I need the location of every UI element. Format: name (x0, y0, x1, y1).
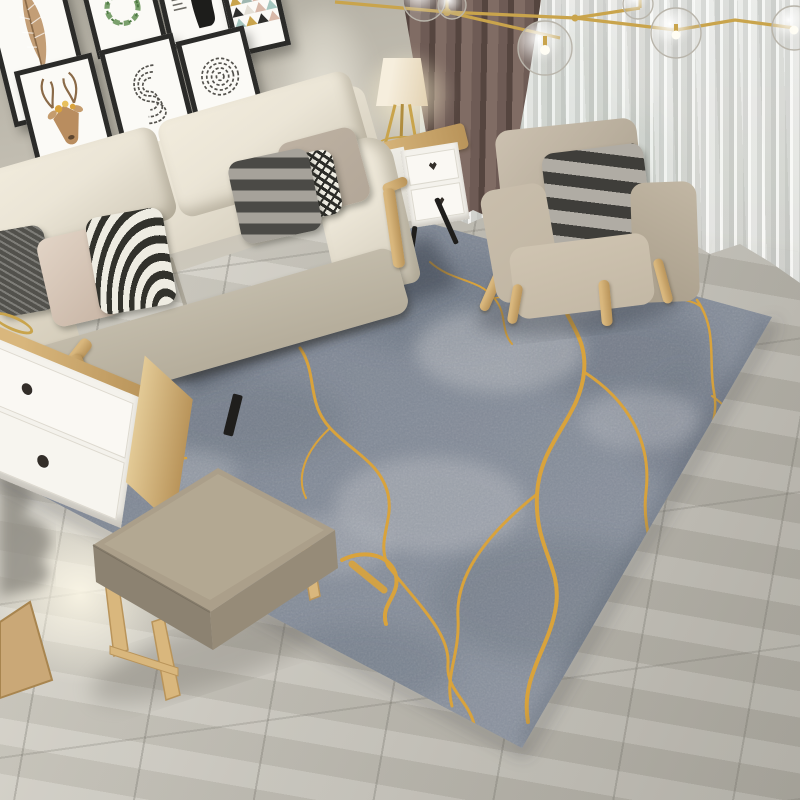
round-knob (21, 381, 33, 396)
pillow-gray-stripe (226, 146, 324, 245)
branch-chandelier (0, 0, 800, 110)
round-knob (36, 453, 49, 470)
chair-seat (508, 232, 656, 321)
ottoman-leg (152, 618, 180, 700)
glass-globes (403, 0, 800, 75)
armchair (440, 100, 740, 360)
living-room-photo: Modern living room product photograph sh… (0, 0, 800, 800)
pillow-optical-stripe (84, 206, 178, 316)
ottoman (80, 460, 350, 710)
